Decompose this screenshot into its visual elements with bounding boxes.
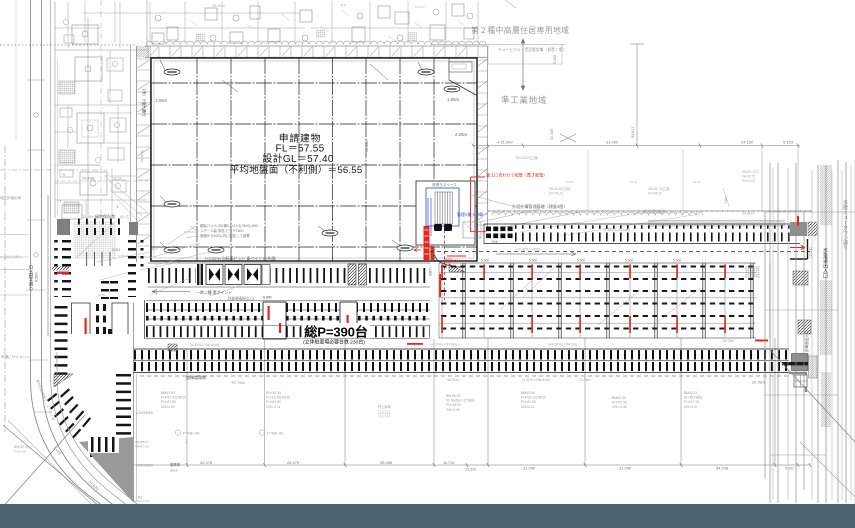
svg-text:P=NE-90: P=NE-90	[183, 431, 200, 436]
svg-text:5,500: 5,500	[481, 259, 489, 263]
svg-text:36.8: 36.8	[340, 3, 346, 7]
svg-text:スチール製 茶色 ピッチ1800: スチール製 茶色 ピッチ1800	[200, 228, 243, 233]
svg-text:確認1.5M: 確認1.5M	[444, 258, 460, 263]
svg-text:FH=57.21(1910): FH=57.21(1910)	[521, 396, 546, 400]
svg-text:BM42.90: BM42.90	[161, 391, 175, 395]
svg-text:15.339: 15.339	[465, 468, 476, 472]
svg-text:GH=0.45: GH=0.45	[446, 408, 460, 412]
svg-text:第２種中高層住居専用地域: 第２種中高層住居専用地域	[471, 25, 569, 35]
svg-text:55.330: 55.330	[365, 140, 369, 152]
svg-text:FH-56.57: FH-56.57	[742, 175, 756, 179]
svg-text:52.04: 52.04	[113, 177, 122, 181]
svg-text:FH=56.00: FH=56.00	[446, 403, 461, 407]
svg-text:24.150: 24.150	[741, 140, 754, 145]
svg-text:基礎から600以内に固定して設置: 基礎から600以内に固定して設置	[200, 233, 250, 238]
svg-text:54.35: 54.35	[98, 293, 105, 297]
svg-text:41900825: 41900825	[136, 411, 153, 415]
svg-text:FH=56.20: FH=56.20	[549, 192, 563, 196]
svg-text:54.84: 54.84	[566, 180, 574, 184]
svg-text:4.600: 4.600	[428, 268, 432, 276]
svg-text:BM-56.63(立面): BM-56.63(立面)	[516, 155, 538, 160]
svg-text:GB-56.73.3: GB-56.73.3	[742, 170, 759, 174]
svg-text:5,500: 5,500	[625, 259, 633, 263]
svg-text:FH=57.50: FH=57.50	[161, 400, 176, 404]
svg-text:N=2.57: N=2.57	[415, 5, 425, 9]
svg-text:FH=57.50: FH=57.50	[266, 400, 281, 404]
svg-text:(1.16% L=31.65m): (1.16% L=31.65m)	[604, 228, 630, 232]
svg-text:BM 56.03: BM 56.03	[446, 394, 461, 398]
svg-text:TB=57.N3: TB=57.N3	[135, 445, 149, 449]
svg-text:GH=-0.45: GH=-0.45	[612, 405, 627, 409]
svg-text:P2: P2	[138, 496, 142, 500]
svg-text:管理X搬入4t車: 管理X搬入4t車	[457, 211, 483, 217]
svg-text:W=6.0m: W=6.0m	[140, 150, 144, 163]
svg-text:FH-51.45(1910): FH-51.45(1910)	[266, 396, 290, 400]
svg-text:Φ4.55.10: Φ4.55.10	[212, 4, 225, 8]
svg-text:5.163: 5.163	[783, 140, 794, 145]
svg-text:8.500: 8.500	[35, 272, 39, 282]
svg-text:16.91m: 16.91m	[447, 378, 459, 382]
svg-text:b=56.12: b=56.12	[118, 254, 129, 258]
svg-text:26.370: 26.370	[287, 460, 300, 465]
svg-text:(立体駐車場必要台数 230台): (立体駐車場必要台数 230台)	[303, 339, 365, 346]
svg-text:2.05m: 2.05m	[455, 132, 468, 137]
svg-text:54.821: 54.821	[631, 126, 635, 138]
svg-text:1.05m: 1.05m	[155, 98, 168, 103]
svg-text:BM42.14: BM42.14	[684, 391, 698, 395]
svg-text:GB-56.70(立面): GB-56.70(立面)	[648, 186, 670, 191]
svg-text:BM43.04: BM43.04	[521, 391, 535, 395]
svg-text:GH=0.00: GH=0.00	[742, 179, 755, 183]
svg-text:GH=0.11: GH=0.11	[521, 405, 535, 409]
svg-text:外設外構管理基礎（建屋4囲）: 外設外構管理基礎（建屋4囲）	[512, 203, 568, 209]
svg-text:FH=57.50: FH=57.50	[612, 401, 627, 405]
svg-text:多摩ニュータウン通り: 多摩ニュータウン通り	[842, 199, 848, 251]
svg-text:26.456: 26.456	[380, 460, 393, 465]
svg-text:TE 99m: TE 99m	[231, 380, 246, 385]
svg-text:6,900: 6,900	[263, 296, 272, 300]
svg-text:盛土に合わせて配管（置き配管）: 盛土に合わせて配管（置き配管）	[486, 172, 547, 178]
svg-text:21.45%: 21.45%	[82, 215, 94, 219]
svg-text:（市）Y幸H通り: （市）Y幸H通り	[141, 86, 148, 117]
svg-text:ニュ初心グ通り: ニュ初心グ通り	[0, 254, 21, 259]
svg-text:31.000: 31.000	[606, 140, 619, 145]
svg-text:地区計画区域: 地区計画区域	[0, 195, 21, 200]
svg-text:GH=0.90: GH=0.90	[14, 450, 26, 454]
svg-text:16.715: 16.715	[443, 461, 454, 465]
svg-text:鋼製バリカ 30t 鋼3.6×12.6(T800)×853: 鋼製バリカ 30t 鋼3.6×12.6(T800)×853	[200, 223, 258, 228]
svg-text:FH=57.00: FH=57.00	[684, 400, 699, 404]
svg-text:42.1: 42.1	[185, 438, 189, 444]
svg-text:FH=57.41(1910): FH=57.41(1910)	[161, 396, 186, 400]
svg-text:通り芯: 通り芯	[120, 214, 129, 219]
svg-text:56.6: 56.6	[152, 247, 158, 251]
svg-text:(+4.30% L=34.3m): (+4.30% L=34.3m)	[548, 343, 577, 347]
svg-text:GH=0.47: GH=0.47	[684, 405, 698, 409]
svg-text:51.45(78回): 51.45(78回)	[684, 396, 702, 400]
svg-text:5,500: 5,500	[529, 259, 537, 263]
svg-text:P=NE-90: P=NE-90	[267, 431, 284, 436]
svg-text:歩車道出入口: 歩車道出入口	[804, 330, 809, 352]
svg-text:一時二種 実ポイント: 一時二種 実ポイント	[196, 290, 232, 295]
svg-text:残土置場: 残土置場	[378, 404, 392, 409]
svg-text:31.000: 31.000	[619, 466, 632, 471]
svg-text:基準帯: 基準帯	[170, 462, 181, 467]
svg-text:総P=390台: 総P=390台	[304, 324, 367, 340]
svg-text:∨: ∨	[59, 198, 62, 203]
svg-text:GH=-0.11: GH=-0.11	[266, 405, 281, 409]
svg-text:キュービクル・受変電設備（参置く電）: キュービクル・受変電設備（参置く電）	[498, 47, 566, 52]
svg-text:歩車道出入口: 歩車道出入口	[822, 247, 828, 279]
svg-text:4 31.000: 4 31.000	[497, 140, 513, 145]
svg-text:20.75m: 20.75m	[752, 381, 765, 385]
svg-text:3.004: 3.004	[112, 248, 120, 252]
svg-text:陸梯増湯線: 陸梯増湯線	[186, 374, 206, 380]
svg-text:54.07: 54.07	[630, 180, 638, 184]
svg-text:FH=57.50: FH=57.50	[521, 400, 536, 404]
svg-text:料金: 料金	[492, 239, 498, 244]
svg-text:12.00C: 12.00C	[809, 247, 813, 258]
svg-text:TB=58.43: TB=58.43	[135, 440, 148, 444]
svg-text:荷捌きスペース: 荷捌きスペース	[432, 182, 457, 187]
svg-text:9.263: 9.263	[553, 55, 557, 64]
svg-text:54.23: 54.23	[693, 180, 701, 184]
svg-text:5.101: 5.101	[785, 467, 794, 471]
svg-text:34.248: 34.248	[716, 466, 729, 471]
svg-text:∨: ∨	[116, 204, 119, 209]
svg-text:42.378: 42.378	[200, 460, 213, 465]
svg-text:(+0.42% L=43m): (+0.42% L=43m)	[516, 248, 541, 252]
svg-text:BM42.29: BM42.29	[612, 396, 626, 400]
svg-text:平均地盤面（不利側）＝56.55: 平均地盤面（不利側）＝56.55	[230, 164, 363, 176]
svg-text:GH=3.90: GH=3.90	[161, 405, 175, 409]
svg-text:72.73m: 72.73m	[578, 378, 590, 382]
svg-text:H19NO825: H19NO825	[136, 464, 153, 468]
svg-text:(20.75m: (20.75m	[722, 339, 734, 343]
svg-text:5,500: 5,500	[673, 259, 681, 263]
svg-text:25.449: 25.449	[82, 176, 95, 181]
svg-text:歩道にサイン: 歩道にサイン	[1, 354, 23, 359]
svg-text:(4.31% L=36.41m): (4.31% L=36.41m)	[522, 378, 550, 382]
svg-text:駐輪場通路(出口): 駐輪場通路(出口)	[228, 296, 254, 301]
svg-text:(4.31% L=36.41m): (4.31% L=36.41m)	[190, 343, 219, 347]
svg-text:1.55m: 1.55m	[447, 97, 460, 102]
svg-text:45: 45	[62, 173, 66, 177]
svg-text:LH36.47H: LH36.47H	[417, 324, 432, 328]
svg-text:境地性防護柵: 境地性防護柵	[642, 209, 665, 214]
svg-text:FL＝57.55: FL＝57.55	[275, 144, 324, 155]
svg-text:設計GL＝57.40: 設計GL＝57.40	[262, 152, 334, 165]
svg-text:(+0.42%) 自転車ピット 青ペイント(共通): (+0.42%) 自転車ピット 青ペイント(共通)	[205, 256, 277, 261]
svg-text:FH=56.30: FH=56.30	[648, 192, 662, 196]
svg-text:32.180: 32.180	[550, 129, 554, 140]
svg-text:BH=57.34: BH=57.34	[266, 391, 281, 395]
svg-text:緑地保存帯: 緑地保存帯	[95, 213, 115, 219]
svg-text:888/8: 888/8	[170, 469, 178, 473]
svg-text:準工業地域: 準工業地域	[501, 94, 547, 105]
svg-text:31.000: 31.000	[523, 466, 536, 471]
svg-text:KB-56.20(立面): KB-56.20(立面)	[549, 186, 571, 191]
svg-text:51.40(6)1.07(78回): 51.40(6)1.07(78回)	[446, 399, 475, 403]
svg-text:24.60m: 24.60m	[742, 212, 755, 216]
svg-text:5,500: 5,500	[577, 259, 585, 263]
svg-text:BM=57.47: BM=57.47	[14, 445, 29, 449]
